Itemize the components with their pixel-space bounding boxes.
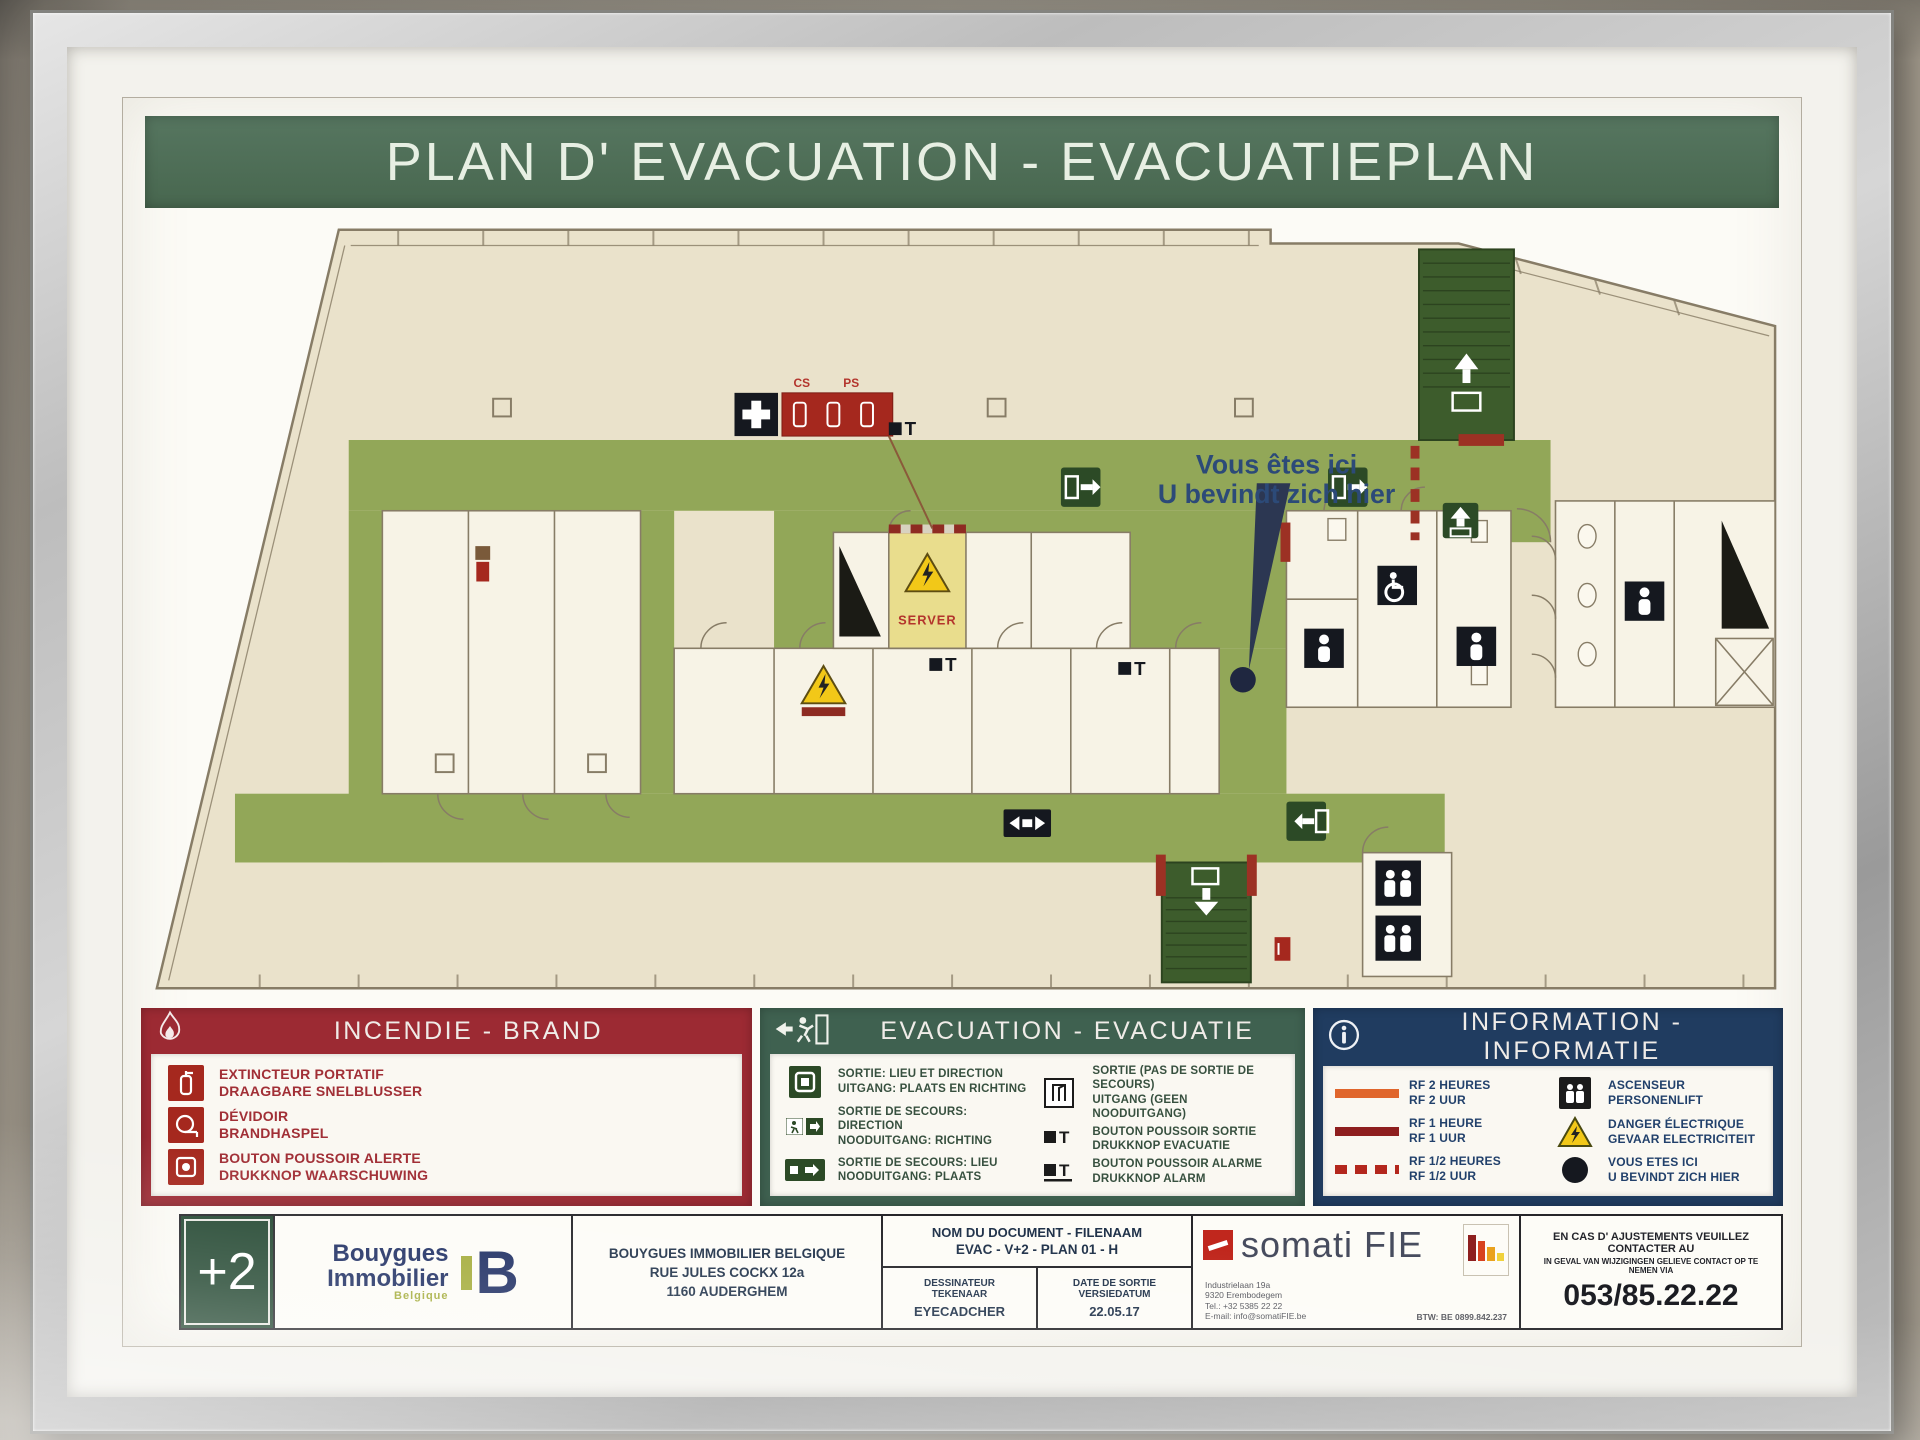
flame-icon [155, 1010, 185, 1053]
item-fr: DANGER ÉLECTRIQUE [1608, 1117, 1744, 1131]
legend-panel-evacuation: EVACUATION - EVACUATIE SORTIE: LIEU ET D… [760, 1008, 1305, 1206]
exit-location-direction-icon [782, 1066, 828, 1098]
information-header: INFORMATION - INFORMATIE [1313, 1008, 1783, 1066]
legend-item-extincteur: EXTINCTEUR PORTATIFDRAAGBARE SNELBLUSSER [163, 1065, 730, 1101]
running-man-exit-icon [774, 1012, 830, 1051]
extinguisher-panel-icon [782, 393, 893, 436]
item-fr: BOUTON POUSSOIR ALERTE [219, 1150, 421, 1166]
legend-item-sortie-non-secours: SORTIE (PAS DE SORTIE DE SECOURS)UITGANG… [1036, 1064, 1283, 1122]
exit-sign-double-arrow [1004, 809, 1051, 837]
item-nl: BRANDHASPEL [219, 1125, 329, 1141]
legend-item-bouton-sortie: T BOUTON POUSSOIR SORTIEDRUKKNOP EVACUAT… [1036, 1125, 1283, 1154]
floor-plan: SERVER [141, 216, 1783, 1002]
somati-address-4: E-mail: info@somatiFIE.be [1205, 1311, 1306, 1322]
somati-address-2: 9320 Erembodegem [1205, 1290, 1306, 1301]
item-nl: NOODUITGANG: RICHTING [838, 1135, 992, 1147]
information-title: INFORMATION - INFORMATIE [1375, 1008, 1769, 1066]
logo-sub: Belgique [327, 1291, 448, 1303]
alert-button-icon [163, 1149, 209, 1185]
address-line2: RUE JULES COCKX 12a [650, 1265, 805, 1280]
legend-panel-information: INFORMATION - INFORMATIE RF 2 HEURESRF 2… [1313, 1008, 1783, 1206]
wc-person-icon-3 [1625, 581, 1665, 620]
page-title: PLAN D' EVACUATION - EVACUATIEPLAN [386, 131, 1539, 193]
somati-vat: BTW: BE 0899.842.237 [1416, 1312, 1507, 1322]
emergency-exit-direction-icon [782, 1118, 828, 1135]
item-nl: GEVAAR ELECTRICITEIT [1608, 1132, 1755, 1146]
legend-item-vous-etes-ici: VOUS ETES ICIU BEVINDT ZICH HIER [1552, 1155, 1761, 1185]
document-header: NOM DU DOCUMENT - FILENAAM [932, 1225, 1142, 1240]
footer: +2 Bouygues Immobilier Belgique B BOUYGU… [179, 1214, 1783, 1330]
legend-item-rf2: RF 2 HEURESRF 2 UUR [1335, 1078, 1544, 1108]
you-are-here-line1: Vous êtes ici [1196, 449, 1357, 479]
item-nl: DRUKKNOP WAARSCHUWING [219, 1167, 428, 1183]
item-fr: EXTINCTEUR PORTATIF [219, 1066, 384, 1082]
item-fr: SORTIE: LIEU ET DIRECTION [838, 1068, 1003, 1080]
item-fr: BOUTON POUSSOIR ALARME [1092, 1158, 1262, 1170]
address-line3: 1160 AUDERGHEM [666, 1284, 787, 1299]
cs-label: CS [794, 376, 811, 390]
rf1-line-icon [1335, 1127, 1399, 1136]
legend-item-bouton-alerte: BOUTON POUSSOIR ALERTEDRUKKNOP WAARSCHUW… [163, 1149, 730, 1185]
company-address-box: BOUYGUES IMMOBILIER BELGIQUE RUE JULES C… [571, 1214, 883, 1330]
info-circle-icon [1327, 1018, 1361, 1057]
logo-line1: Bouygues [327, 1241, 448, 1266]
item-fr: SORTIE (PAS DE SORTIE DE SECOURS) [1092, 1065, 1254, 1091]
somati-box: somati FIE Industrielaan 19a 9320 Erembo… [1191, 1214, 1521, 1330]
bouygues-b-mark: B [461, 1247, 519, 1298]
svg-text:T: T [1059, 1128, 1070, 1147]
contact-line-fr: EN CAS D' AJUSTEMENTS VEUILLEZ CONTACTER… [1531, 1231, 1771, 1255]
item-nl: DRAAGBARE SNELBLUSSER [219, 1083, 422, 1099]
legend-item-rf1: RF 1 HEURERF 1 UUR [1335, 1116, 1544, 1146]
date-label-nl: VERSIEDATUM [1078, 1289, 1150, 1301]
title-banner: PLAN D' EVACUATION - EVACUATIEPLAN [145, 116, 1779, 208]
evacuation-poster: PLAN D' EVACUATION - EVACUATIEPLAN [122, 97, 1802, 1347]
server-label: SERVER [898, 613, 957, 628]
incendie-header: INCENDIE - BRAND [141, 1008, 752, 1054]
logo-bar [461, 1256, 472, 1290]
item-fr: BOUTON POUSSOIR SORTIE [1092, 1126, 1256, 1138]
incendie-body: EXTINCTEUR PORTATIFDRAAGBARE SNELBLUSSER… [151, 1054, 742, 1196]
item-nl: UITGANG (GEEN NOODUITGANG) [1092, 1094, 1187, 1120]
wc-wheelchair-icon [1377, 566, 1417, 605]
somati-logo-icon [1203, 1230, 1233, 1260]
evacuation-body: SORTIE: LIEU ET DIRECTIONUITGANG: PLAATS… [770, 1054, 1295, 1196]
somati-address-3: Tel.: +32 5385 22 22 [1205, 1301, 1306, 1312]
ps-label: PS [843, 376, 859, 390]
wc-person-icon-2 [1457, 627, 1497, 666]
somati-name: somati FIE [1241, 1224, 1423, 1266]
contact-line-nl: IN GEVAL VAN WIJZIGINGEN GELIEVE CONTACT… [1531, 1257, 1771, 1275]
item-fr: VOUS ETES ICI [1608, 1155, 1698, 1169]
rf2-line-icon [1335, 1089, 1399, 1098]
logo-line2: Immobilier [327, 1266, 448, 1291]
item-fr: SORTIE DE SECOURS: LIEU [838, 1157, 998, 1169]
legend-item-secours-direction: SORTIE DE SECOURS: DIRECTIONNOODUITGANG:… [782, 1105, 1029, 1148]
evacuation-title: EVACUATION - EVACUATIE [844, 1017, 1291, 1046]
legend-item-bouton-alarme: T BOUTON POUSSOIR ALARMEDRUKKNOP ALARM [1036, 1157, 1283, 1186]
item-fr: RF 1/2 HEURES [1409, 1154, 1501, 1168]
stairwell-bottom [1162, 862, 1251, 982]
logo-b: B [476, 1247, 519, 1298]
legend-panel-incendie: INCENDIE - BRAND EXTINCTEUR PORTATIFDRAA… [141, 1008, 752, 1206]
hose-reel-icon [163, 1107, 209, 1143]
address-line1: BOUYGUES IMMOBILIER BELGIQUE [609, 1246, 845, 1261]
contact-phone: 053/85.22.22 [1563, 1279, 1738, 1313]
legend-item-danger-electrique: DANGER ÉLECTRIQUEGEVAAR ELECTRICITEIT [1552, 1116, 1761, 1148]
legend: INCENDIE - BRAND EXTINCTEUR PORTATIFDRAA… [141, 1008, 1783, 1206]
designer-label-fr: DESSINATEUR [924, 1278, 995, 1290]
wc-person-icon-1 [1304, 629, 1344, 668]
extinguisher-icon [163, 1065, 209, 1101]
frame-mat: PLAN D' EVACUATION - EVACUATIEPLAN [67, 47, 1857, 1397]
push-button-alarm-icon: T [1036, 1161, 1082, 1183]
svg-text:T: T [905, 418, 917, 439]
designer-value: EYECADCHER [914, 1304, 1005, 1319]
item-nl: RF 1 UUR [1409, 1131, 1466, 1145]
item-fr: SORTIE DE SECOURS: DIRECTION [838, 1106, 967, 1132]
contact-box: EN CAS D' AJUSTEMENTS VEUILLEZ CONTACTER… [1519, 1214, 1783, 1330]
fire-certification-logo [1463, 1224, 1509, 1276]
elevator-icon [1552, 1077, 1598, 1109]
svg-text:T: T [945, 654, 957, 675]
somati-address-1: Industrielaan 19a [1205, 1280, 1306, 1291]
svg-text:T: T [1059, 1161, 1070, 1180]
photo-of-evacuation-plan: { "title": "PLAN D' EVACUATION - EVACUAT… [0, 0, 1920, 1440]
emergency-exit-location-icon [782, 1159, 828, 1181]
item-nl: DRUKKNOP ALARM [1092, 1173, 1205, 1185]
you-are-here-dot-icon [1552, 1157, 1598, 1183]
push-button-exit-icon: T [1036, 1128, 1082, 1150]
item-fr: ASCENSEUR [1608, 1078, 1685, 1092]
item-nl: U BEVINDT ZICH HIER [1608, 1170, 1740, 1184]
you-are-here-line2: U bevindt zich hier [1158, 479, 1395, 509]
floor-plan-svg: SERVER [141, 216, 1783, 1002]
date-value: 22.05.17 [1089, 1304, 1140, 1319]
legend-item-rf05: RF 1/2 HEURESRF 1/2 UUR [1335, 1154, 1544, 1184]
exit-sign-up [1443, 503, 1479, 538]
exit-sign-left [1286, 802, 1328, 841]
svg-text:T: T [1134, 658, 1146, 679]
item-nl: PERSONENLIFT [1608, 1093, 1703, 1107]
electric-danger-icon [1552, 1116, 1598, 1148]
item-fr: DÉVIDOIR [219, 1108, 288, 1124]
designer-label-nl: TEKENAAR [932, 1289, 988, 1301]
legend-item-secours-lieu: SORTIE DE SECOURS: LIEUNOODUITGANG: PLAA… [782, 1156, 1029, 1185]
item-fr: RF 2 HEURES [1409, 1078, 1491, 1092]
legend-item-ascenseur: ASCENSEURPERSONENLIFT [1552, 1077, 1761, 1109]
floor-label: +2 [197, 1242, 256, 1302]
item-nl: UITGANG: PLAATS EN RICHTING [838, 1083, 1027, 1095]
item-nl: RF 1/2 UUR [1409, 1169, 1476, 1183]
date-cell: DATE DE SORTIE VERSIEDATUM 22.05.17 [1036, 1268, 1191, 1328]
evacuation-header: EVACUATION - EVACUATIE [760, 1008, 1305, 1054]
stairwell-top-right [1419, 249, 1514, 440]
item-nl: NOODUITGANG: PLAATS [838, 1171, 982, 1183]
door-outline-icon [1036, 1078, 1082, 1108]
designer-cell: DESSINATEUR TEKENAAR EYECADCHER [883, 1268, 1036, 1328]
floor-indicator: +2 [179, 1214, 275, 1330]
bouygues-logo-box: Bouygues Immobilier Belgique B [273, 1214, 573, 1330]
legend-item-sortie-lieu-direction: SORTIE: LIEU ET DIRECTIONUITGANG: PLAATS… [782, 1066, 1029, 1098]
item-nl: RF 2 UUR [1409, 1093, 1466, 1107]
rf-half-line-icon [1335, 1165, 1399, 1174]
date-label-fr: DATE DE SORTIE [1073, 1278, 1156, 1290]
legend-item-devidoir: DÉVIDOIRBRANDHASPEL [163, 1107, 730, 1143]
server-room: SERVER [889, 525, 966, 649]
item-fr: RF 1 HEURE [1409, 1116, 1482, 1130]
item-nl: DRUKKNOP EVACUATIE [1092, 1140, 1230, 1152]
incendie-title: INCENDIE - BRAND [199, 1017, 738, 1046]
document-info-box: NOM DU DOCUMENT - FILENAAM EVAC - V+2 - … [881, 1214, 1193, 1330]
exit-sign-right-1 [1061, 468, 1101, 507]
picture-frame: PLAN D' EVACUATION - EVACUATIEPLAN [30, 10, 1894, 1434]
information-body: RF 2 HEURESRF 2 UUR RF 1 HEURERF 1 UUR R… [1323, 1066, 1773, 1196]
document-name: EVAC - V+2 - PLAN 01 - H [956, 1242, 1118, 1257]
